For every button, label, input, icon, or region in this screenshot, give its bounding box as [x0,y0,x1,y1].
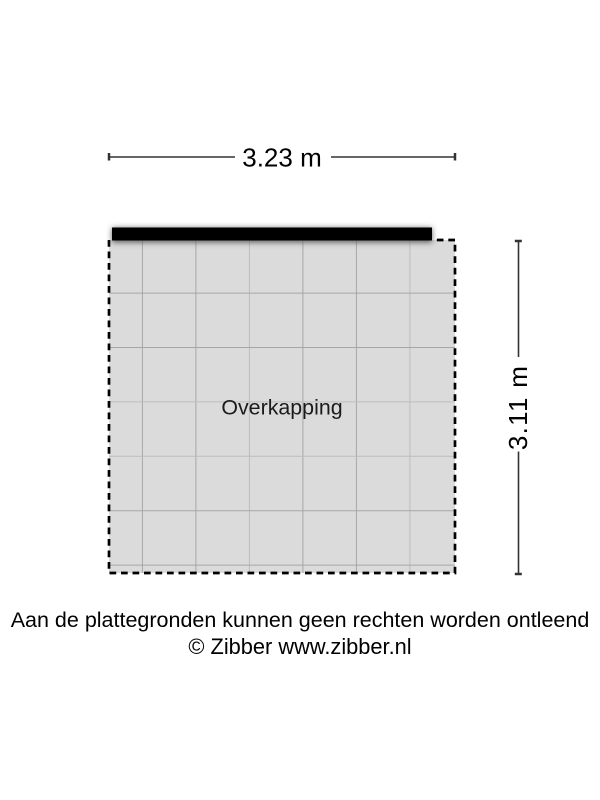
svg-text:© Zibber www.zibber.nl: © Zibber www.zibber.nl [188,634,411,659]
svg-text:3.23 m: 3.23 m [242,143,322,173]
svg-text:Overkapping: Overkapping [221,396,342,420]
svg-text:3.11 m: 3.11 m [503,365,533,450]
svg-text:Aan de plattegronden kunnen ge: Aan de plattegronden kunnen geen rechten… [11,608,590,632]
